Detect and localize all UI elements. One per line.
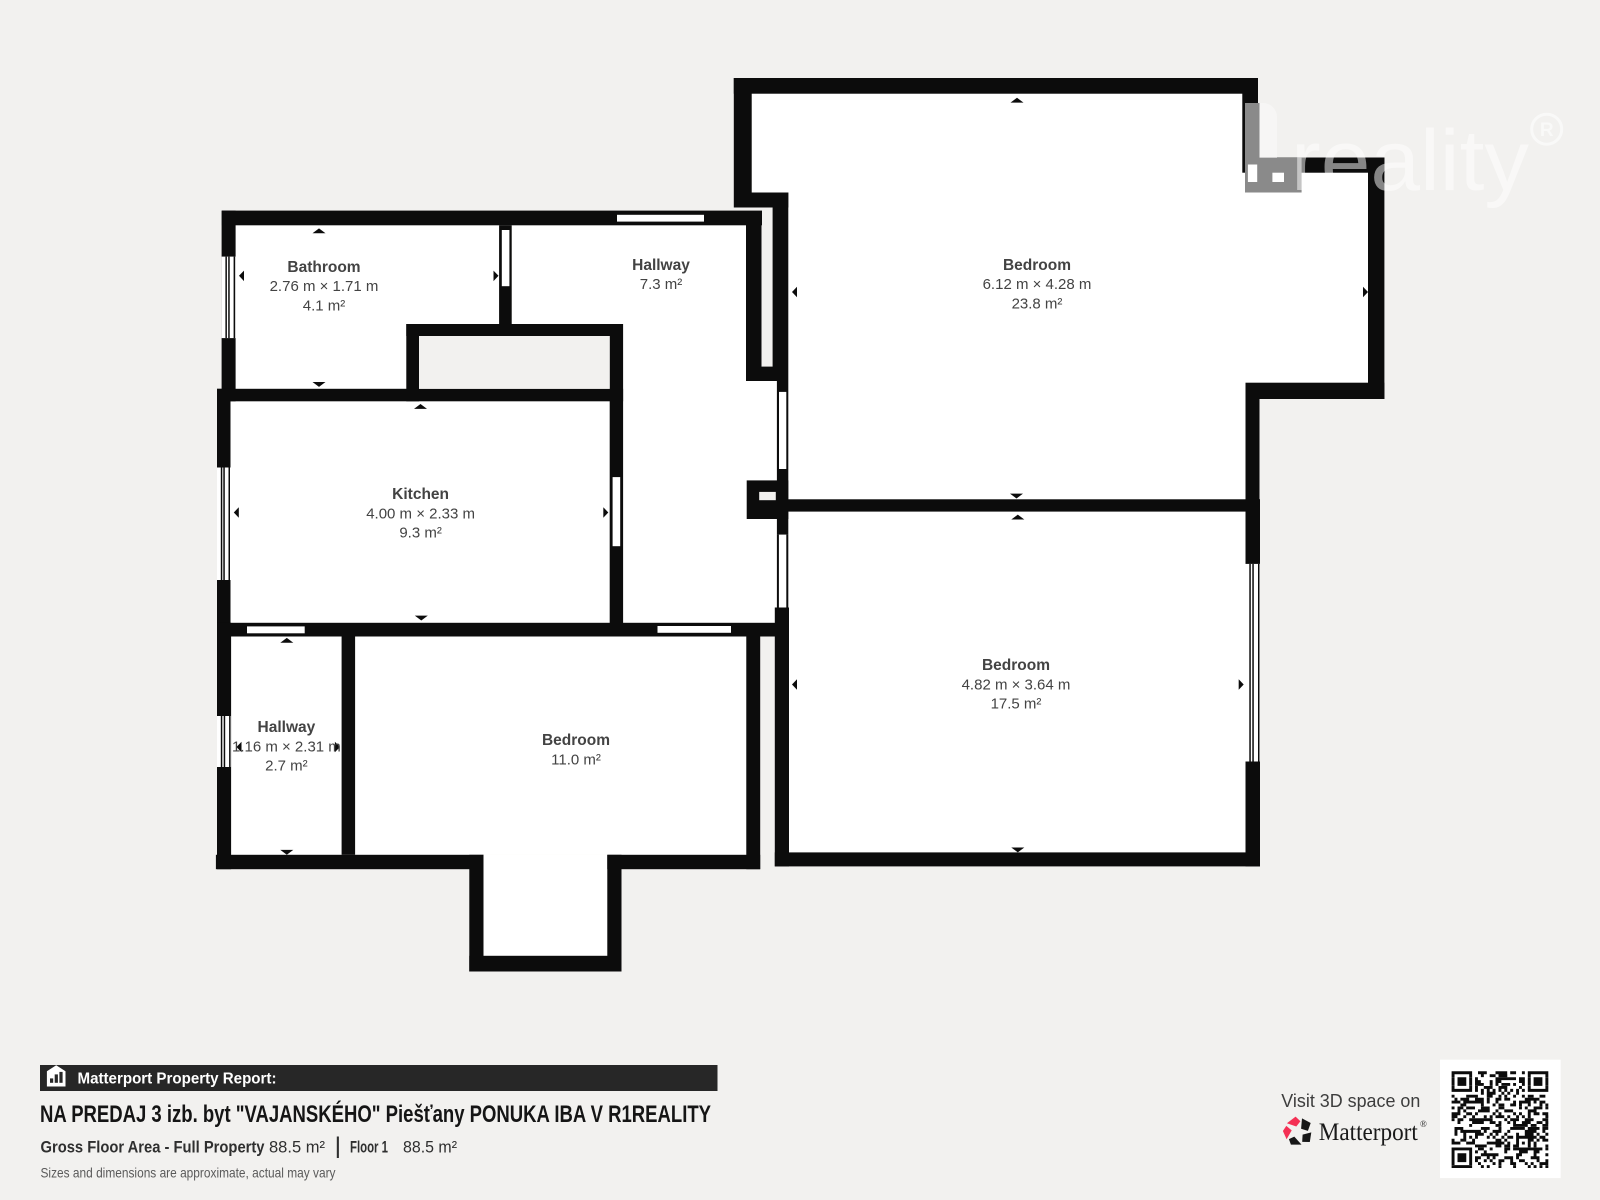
svg-text:R: R [1540, 120, 1554, 141]
svg-text:4.1 m²: 4.1 m² [303, 297, 346, 314]
svg-text:Sizes and dimensions are appro: Sizes and dimensions are approximate, ac… [41, 1165, 336, 1181]
svg-text:88.5 m²: 88.5 m² [403, 1139, 457, 1157]
svg-text:Bathroom: Bathroom [287, 259, 360, 276]
svg-text:NA PREDAJ 3 izb. byt "VAJANSKÉ: NA PREDAJ 3 izb. byt "VAJANSKÉHO" Piešťa… [40, 1100, 711, 1128]
svg-text:4.82 m × 3.64 m: 4.82 m × 3.64 m [962, 676, 1071, 693]
svg-text:Floor 1: Floor 1 [350, 1139, 388, 1157]
svg-text:Bedroom: Bedroom [982, 657, 1050, 674]
svg-text:Matterport Property Report:: Matterport Property Report: [78, 1071, 277, 1088]
svg-text:1.16 m × 2.31 m: 1.16 m × 2.31 m [232, 738, 341, 755]
svg-text:Gross Floor Area - Full Proper: Gross Floor Area - Full Property [41, 1139, 266, 1157]
svg-text:2.7 m²: 2.7 m² [265, 758, 308, 775]
svg-text:Hallway: Hallway [632, 257, 690, 274]
svg-text:Hallway: Hallway [258, 719, 316, 736]
svg-text:®: ® [1420, 1119, 1427, 1129]
svg-text:Kitchen: Kitchen [392, 486, 449, 503]
svg-text:Bedroom: Bedroom [1003, 257, 1071, 274]
svg-text:88.5 m²: 88.5 m² [269, 1139, 326, 1157]
svg-text:Visit 3D space on: Visit 3D space on [1281, 1091, 1420, 1111]
svg-text:reality: reality [1291, 113, 1529, 209]
svg-text:2.76 m × 1.71 m: 2.76 m × 1.71 m [270, 278, 379, 295]
svg-text:9.3 m²: 9.3 m² [399, 525, 442, 542]
svg-text:11.0 m²: 11.0 m² [551, 751, 601, 768]
svg-text:23.8 m²: 23.8 m² [1012, 295, 1063, 312]
svg-text:Bedroom: Bedroom [542, 732, 610, 749]
svg-text:4.00 m × 2.33 m: 4.00 m × 2.33 m [366, 505, 475, 522]
svg-text:17.5 m²: 17.5 m² [991, 696, 1042, 713]
svg-text:7.3 m²: 7.3 m² [640, 276, 683, 293]
svg-text:6.12 m × 4.28 m: 6.12 m × 4.28 m [983, 276, 1092, 293]
svg-text:Matterport: Matterport [1319, 1117, 1418, 1146]
